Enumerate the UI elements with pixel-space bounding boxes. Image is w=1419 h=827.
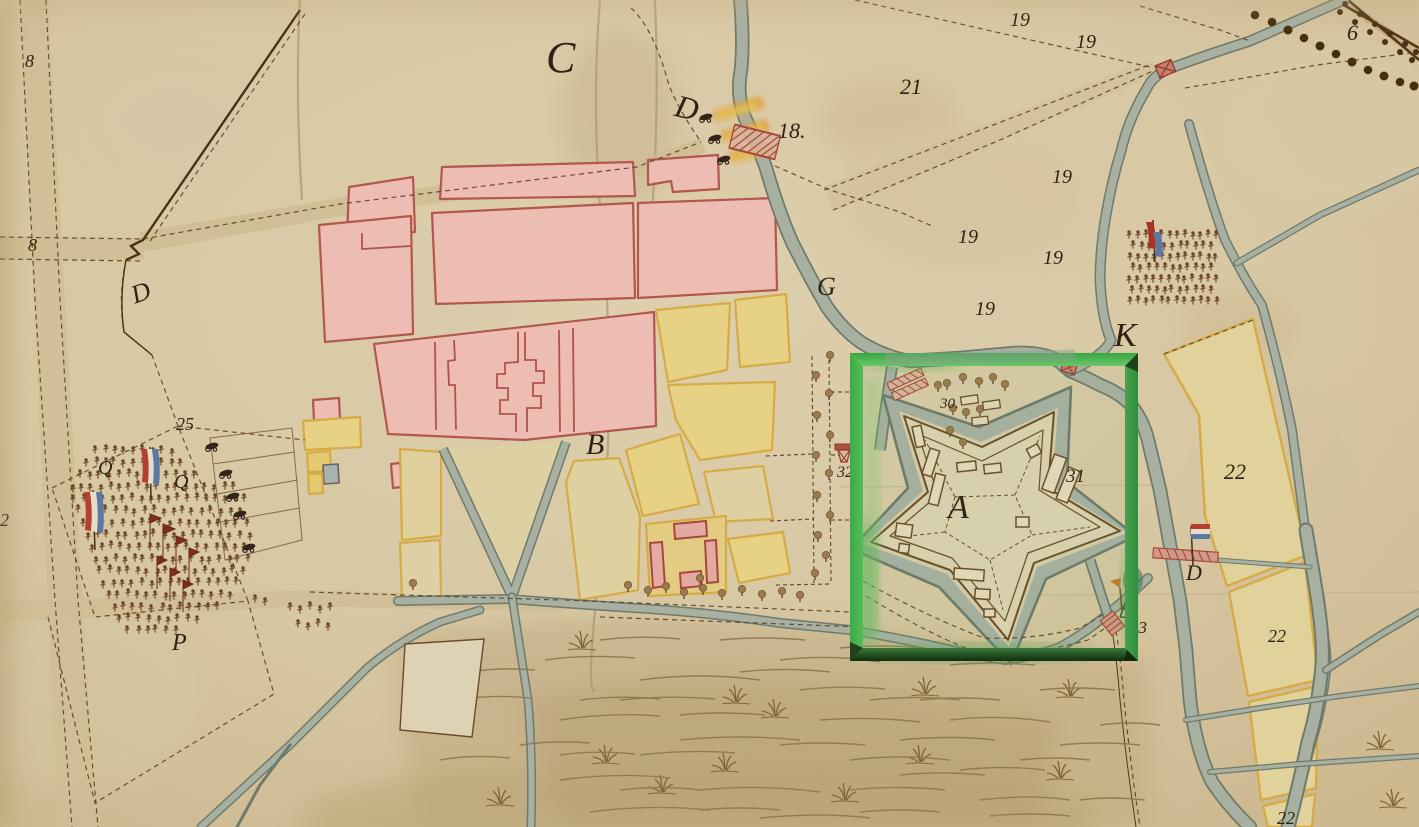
svg-text:19: 19 (1076, 31, 1096, 53)
svg-text:8: 8 (28, 235, 37, 255)
svg-text:G: G (817, 272, 836, 301)
svg-text:D: D (1185, 560, 1202, 585)
svg-text:B: B (586, 428, 604, 461)
svg-text:C: C (546, 33, 576, 82)
svg-text:22: 22 (1268, 626, 1286, 646)
svg-text:18.: 18. (778, 118, 806, 143)
svg-text:19: 19 (975, 298, 995, 320)
svg-text:P: P (171, 630, 187, 656)
svg-text:19: 19 (958, 226, 978, 248)
svg-text:19: 19 (1052, 166, 1072, 188)
svg-text:25: 25 (176, 414, 194, 434)
svg-text:6: 6 (1347, 20, 1358, 45)
svg-text:22: 22 (1277, 808, 1295, 827)
svg-text:22: 22 (1224, 459, 1246, 484)
svg-text:21: 21 (900, 74, 922, 99)
svg-text:8: 8 (25, 51, 34, 71)
svg-text:Q: Q (98, 457, 113, 479)
svg-text:K: K (1113, 317, 1139, 354)
svg-text:19: 19 (1043, 247, 1063, 269)
svg-text:19: 19 (1010, 9, 1030, 31)
svg-text:Q: Q (174, 471, 189, 493)
